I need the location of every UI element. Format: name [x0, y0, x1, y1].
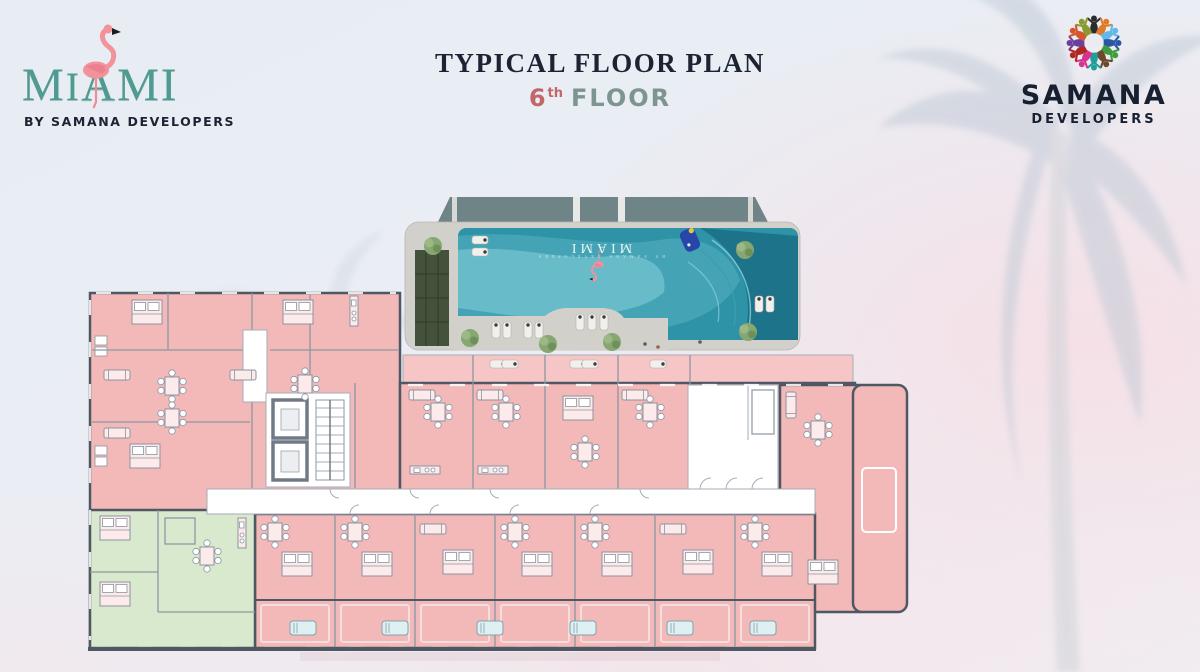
page: MIAMI BY SAMANA DEVELOPERS — [0, 0, 1200, 672]
unit-row-bottom — [255, 514, 815, 648]
pool-brand-subtext: BY SAMANA DEVELOPERS — [535, 254, 665, 259]
plunge-pool — [290, 621, 316, 635]
samana-emblem-icon — [1059, 8, 1129, 78]
plunge-pool — [477, 621, 503, 635]
miami-logo: MIAMI BY SAMANA DEVELOPERS — [20, 6, 230, 138]
pool-tree-icon — [739, 323, 757, 341]
pool-render: MIAMI BY SAMANA DEVELOPERS — [405, 197, 800, 353]
flamingo-icon — [70, 18, 130, 118]
pool-brand-text: MIAMI — [568, 240, 632, 255]
stairwell — [316, 400, 344, 480]
plunge-pool — [750, 621, 776, 635]
miami-tagline: BY SAMANA DEVELOPERS — [24, 114, 235, 129]
balcony-strip-top — [403, 355, 853, 385]
pool-tree-icon — [424, 237, 442, 255]
samana-subtitle: DEVELOPERS — [1014, 112, 1174, 127]
pool-tree-icon — [736, 241, 754, 259]
plunge-pool — [382, 621, 408, 635]
plunge-pool — [667, 621, 693, 635]
samana-logo: SAMANA DEVELOPERS — [1014, 8, 1174, 127]
pool-tree-icon — [603, 333, 621, 351]
pool-tree-icon — [461, 329, 479, 347]
plunge-pool — [570, 621, 596, 635]
samana-wordmark: SAMANA — [1014, 80, 1174, 111]
pool-tree-icon — [539, 335, 557, 353]
lift-lobby — [688, 385, 778, 489]
